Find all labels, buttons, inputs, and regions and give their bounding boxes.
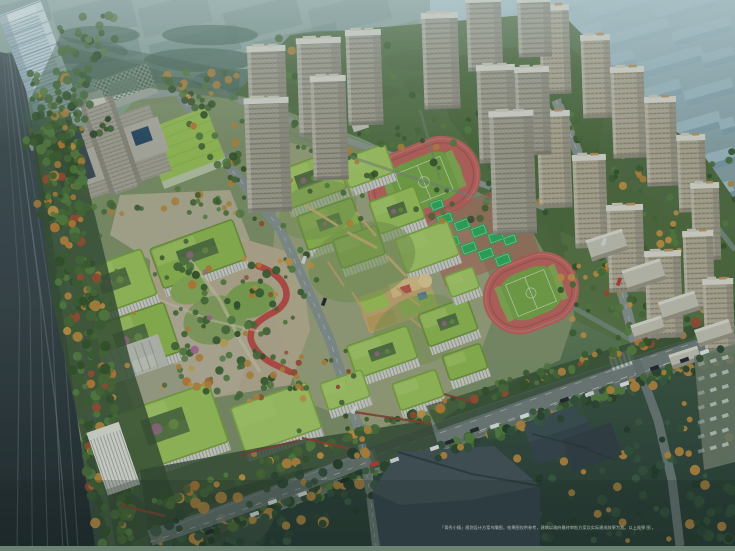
svg-text:「青秀小镇」规划设计方案鸟瞰图，效果图仅供参考，建筑以政府最: 「青秀小镇」规划设计方案鸟瞰图，效果图仅供参考，建筑以政府最终审批方案及实际建成… bbox=[440, 524, 656, 531]
